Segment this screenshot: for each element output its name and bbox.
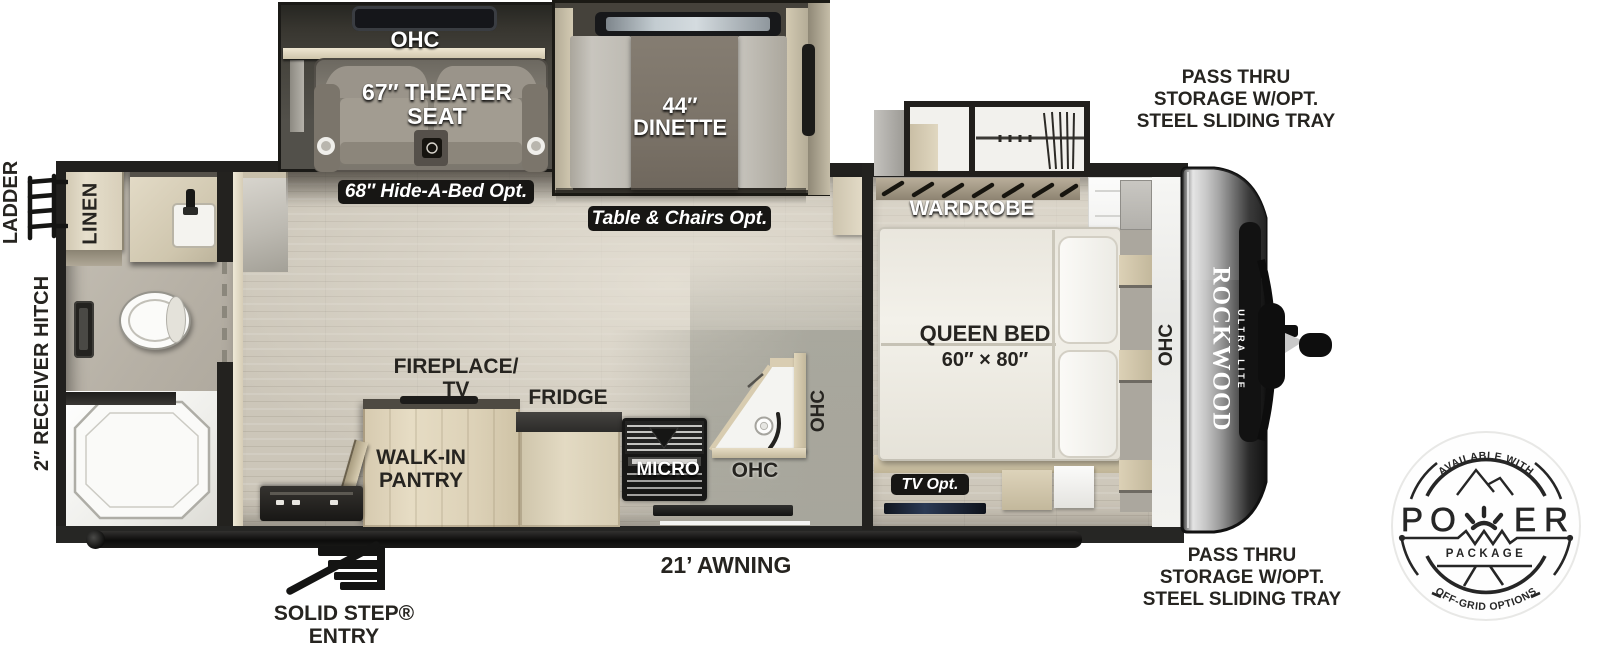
svg-text:PACKAGE: PACKAGE [1446, 548, 1526, 560]
svg-text:O: O [1430, 501, 1456, 538]
svg-text:P: P [1401, 501, 1423, 538]
svg-text:R: R [1544, 501, 1568, 538]
svg-text:E: E [1514, 501, 1536, 538]
